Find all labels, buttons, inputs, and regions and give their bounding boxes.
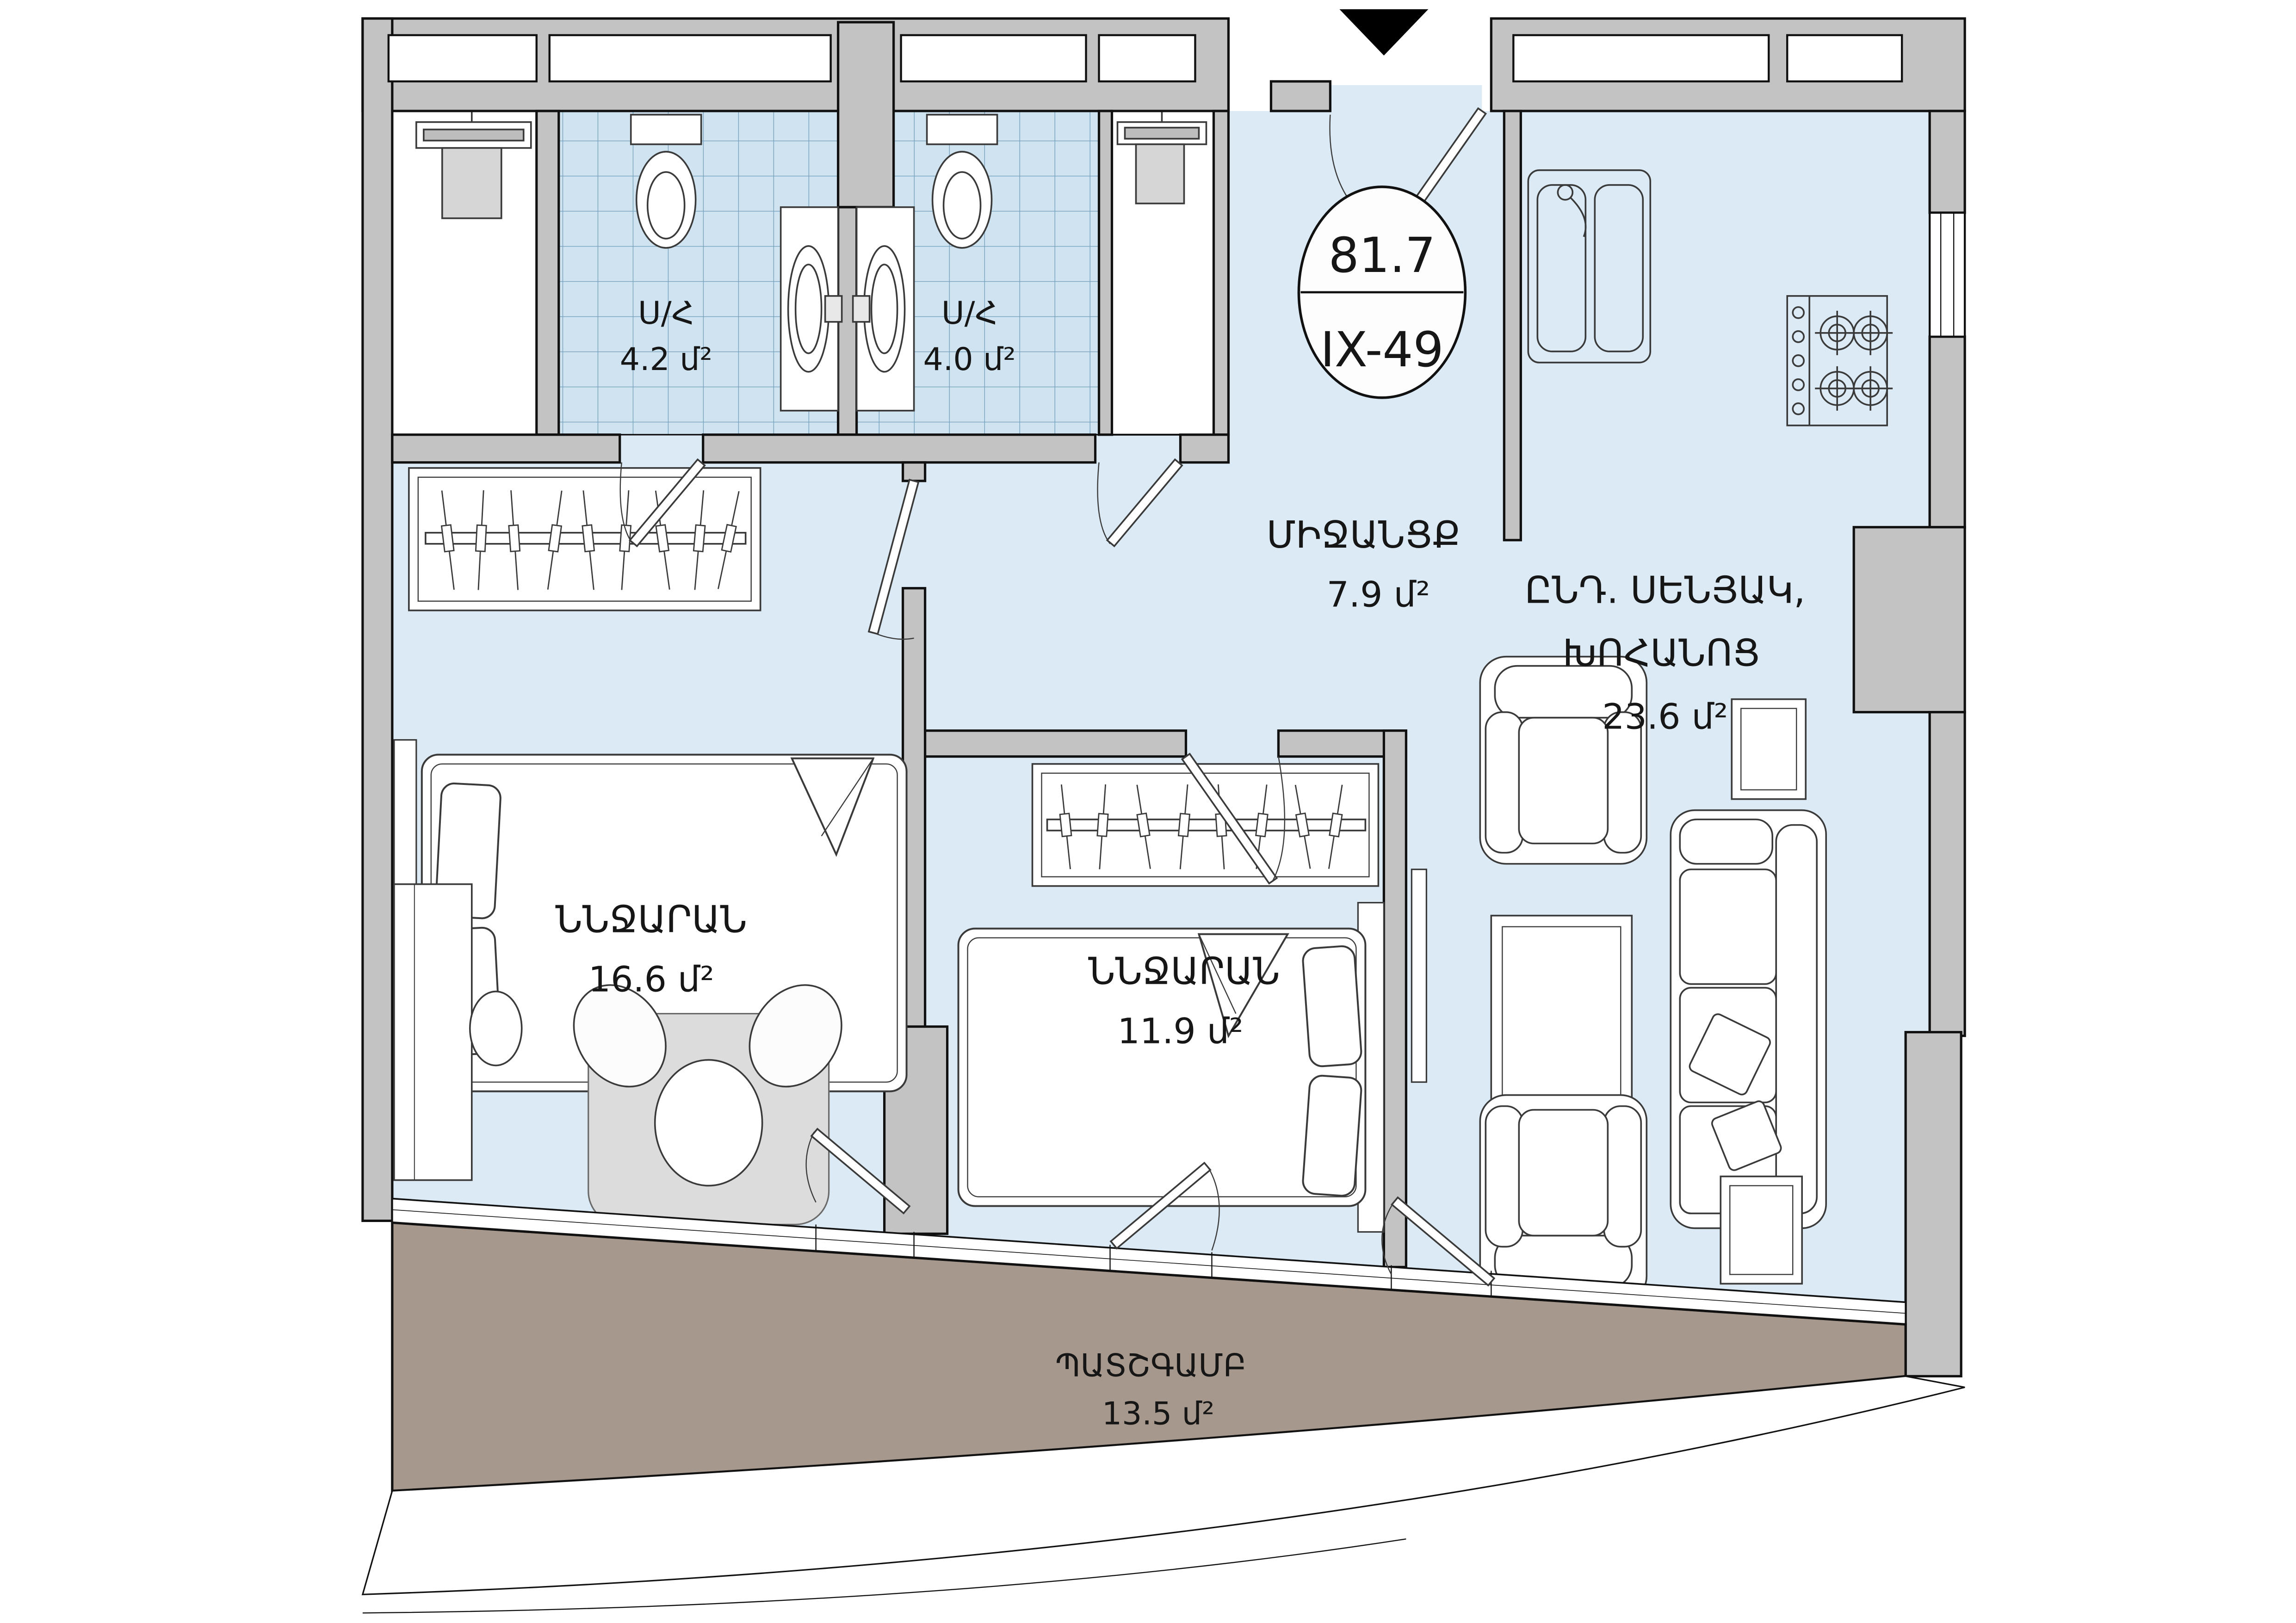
side-table-icon: [1720, 1176, 1802, 1284]
entrance-threshold: [1330, 85, 1482, 115]
wall-hall-kitchen: [1504, 111, 1521, 540]
window-3: [901, 35, 1086, 81]
closet-2: [1112, 111, 1214, 435]
label-bedroom1-name: ՆՆՋԱՐԱՆ: [556, 898, 747, 941]
side-table-icon: [1732, 699, 1806, 799]
label-hallway-name: ՄԻՋԱՆՑՔ: [1267, 513, 1461, 556]
toilet-icon: [927, 115, 997, 248]
wall-right-b: [1930, 337, 1965, 527]
armchair-icon: [1480, 1095, 1646, 1302]
tv-console: [1411, 870, 1426, 1082]
label-balcony-area: 13.5 մ²: [1102, 1395, 1214, 1432]
badge-area: 81.7: [1329, 227, 1436, 284]
label-bath1-area: 4.2 մ²: [620, 341, 712, 378]
wall-balcony-column: [1906, 1032, 1961, 1376]
label-balcony-name: ՊԱՏՇԳԱՄԲ: [1055, 1347, 1246, 1384]
sofa-icon: [1671, 810, 1826, 1228]
wall-below-baths-c: [1180, 435, 1228, 463]
wall-right-c: [1930, 712, 1965, 1036]
label-hallway-area: 7.9 մ²: [1327, 574, 1430, 615]
wall-right-notch: [1854, 527, 1965, 712]
label-bath1-name: Ս/Հ: [638, 295, 694, 332]
dining-table-icon: [1491, 916, 1632, 1123]
entrance-arrow-icon: [1339, 9, 1428, 56]
round-table-icon: [655, 1060, 762, 1186]
window-1: [389, 35, 537, 81]
badge-unit: IX-49: [1320, 321, 1444, 378]
window-right-wall: [1930, 213, 1965, 337]
closet-1: [392, 111, 537, 435]
floor-plan: 81.7 IX-49 Ս/Հ 4.2 մ² Ս/Հ 4.0 մ² ՄԻՋԱՆՑՔ…: [0, 0, 2296, 1622]
label-bedroom1-area: 16.6 մ²: [588, 959, 714, 1000]
window-5: [1513, 35, 1769, 81]
wall-right-a: [1930, 111, 1965, 213]
window-6: [1787, 35, 1902, 81]
wall-left: [363, 19, 392, 1221]
window-2: [550, 35, 831, 81]
chair-icon: [470, 992, 522, 1066]
wall-below-baths-a: [392, 435, 620, 463]
sink-icon: [853, 207, 914, 411]
wall-closet2-hall: [1213, 111, 1228, 435]
wall-bedroom2-top-a: [925, 731, 1186, 757]
unit-badge: 81.7 IX-49: [1299, 187, 1465, 398]
sink-icon: [781, 207, 842, 411]
label-bedroom2-name: ՆՆՋԱՐԱՆ: [1088, 950, 1280, 993]
wall-closet1-bath1: [537, 111, 559, 435]
label-bedroom2-area: 11.9 մ²: [1118, 1011, 1244, 1052]
window-4: [1099, 35, 1195, 81]
label-bath2-area: 4.0 մ²: [923, 341, 1016, 378]
wardrobe-icon: [409, 468, 761, 611]
floor-plan-page: 81.7 IX-49 Ս/Հ 4.2 մ² Ս/Հ 4.0 մ² ՄԻՋԱՆՑՔ…: [0, 0, 2296, 1622]
wall-bedroom1-a: [903, 463, 925, 481]
wall-entry-stub: [1271, 81, 1330, 111]
wall-pier: [838, 22, 894, 207]
wall-below-baths-b: [703, 435, 1095, 463]
label-bath2-name: Ս/Հ: [941, 295, 997, 332]
label-living-name1: ԸՆԴ. ՍԵՆՅԱԿ,: [1525, 569, 1806, 612]
toilet-icon: [631, 115, 701, 248]
wall-bath2-closet2: [1099, 111, 1112, 435]
wall-bedroom2-right: [1384, 731, 1406, 1267]
label-living-name2: ԽՈՀԱՆՈՑ: [1563, 632, 1760, 675]
armchair-icon: [1480, 657, 1646, 864]
label-living-area: 23.6 մ²: [1602, 696, 1728, 737]
